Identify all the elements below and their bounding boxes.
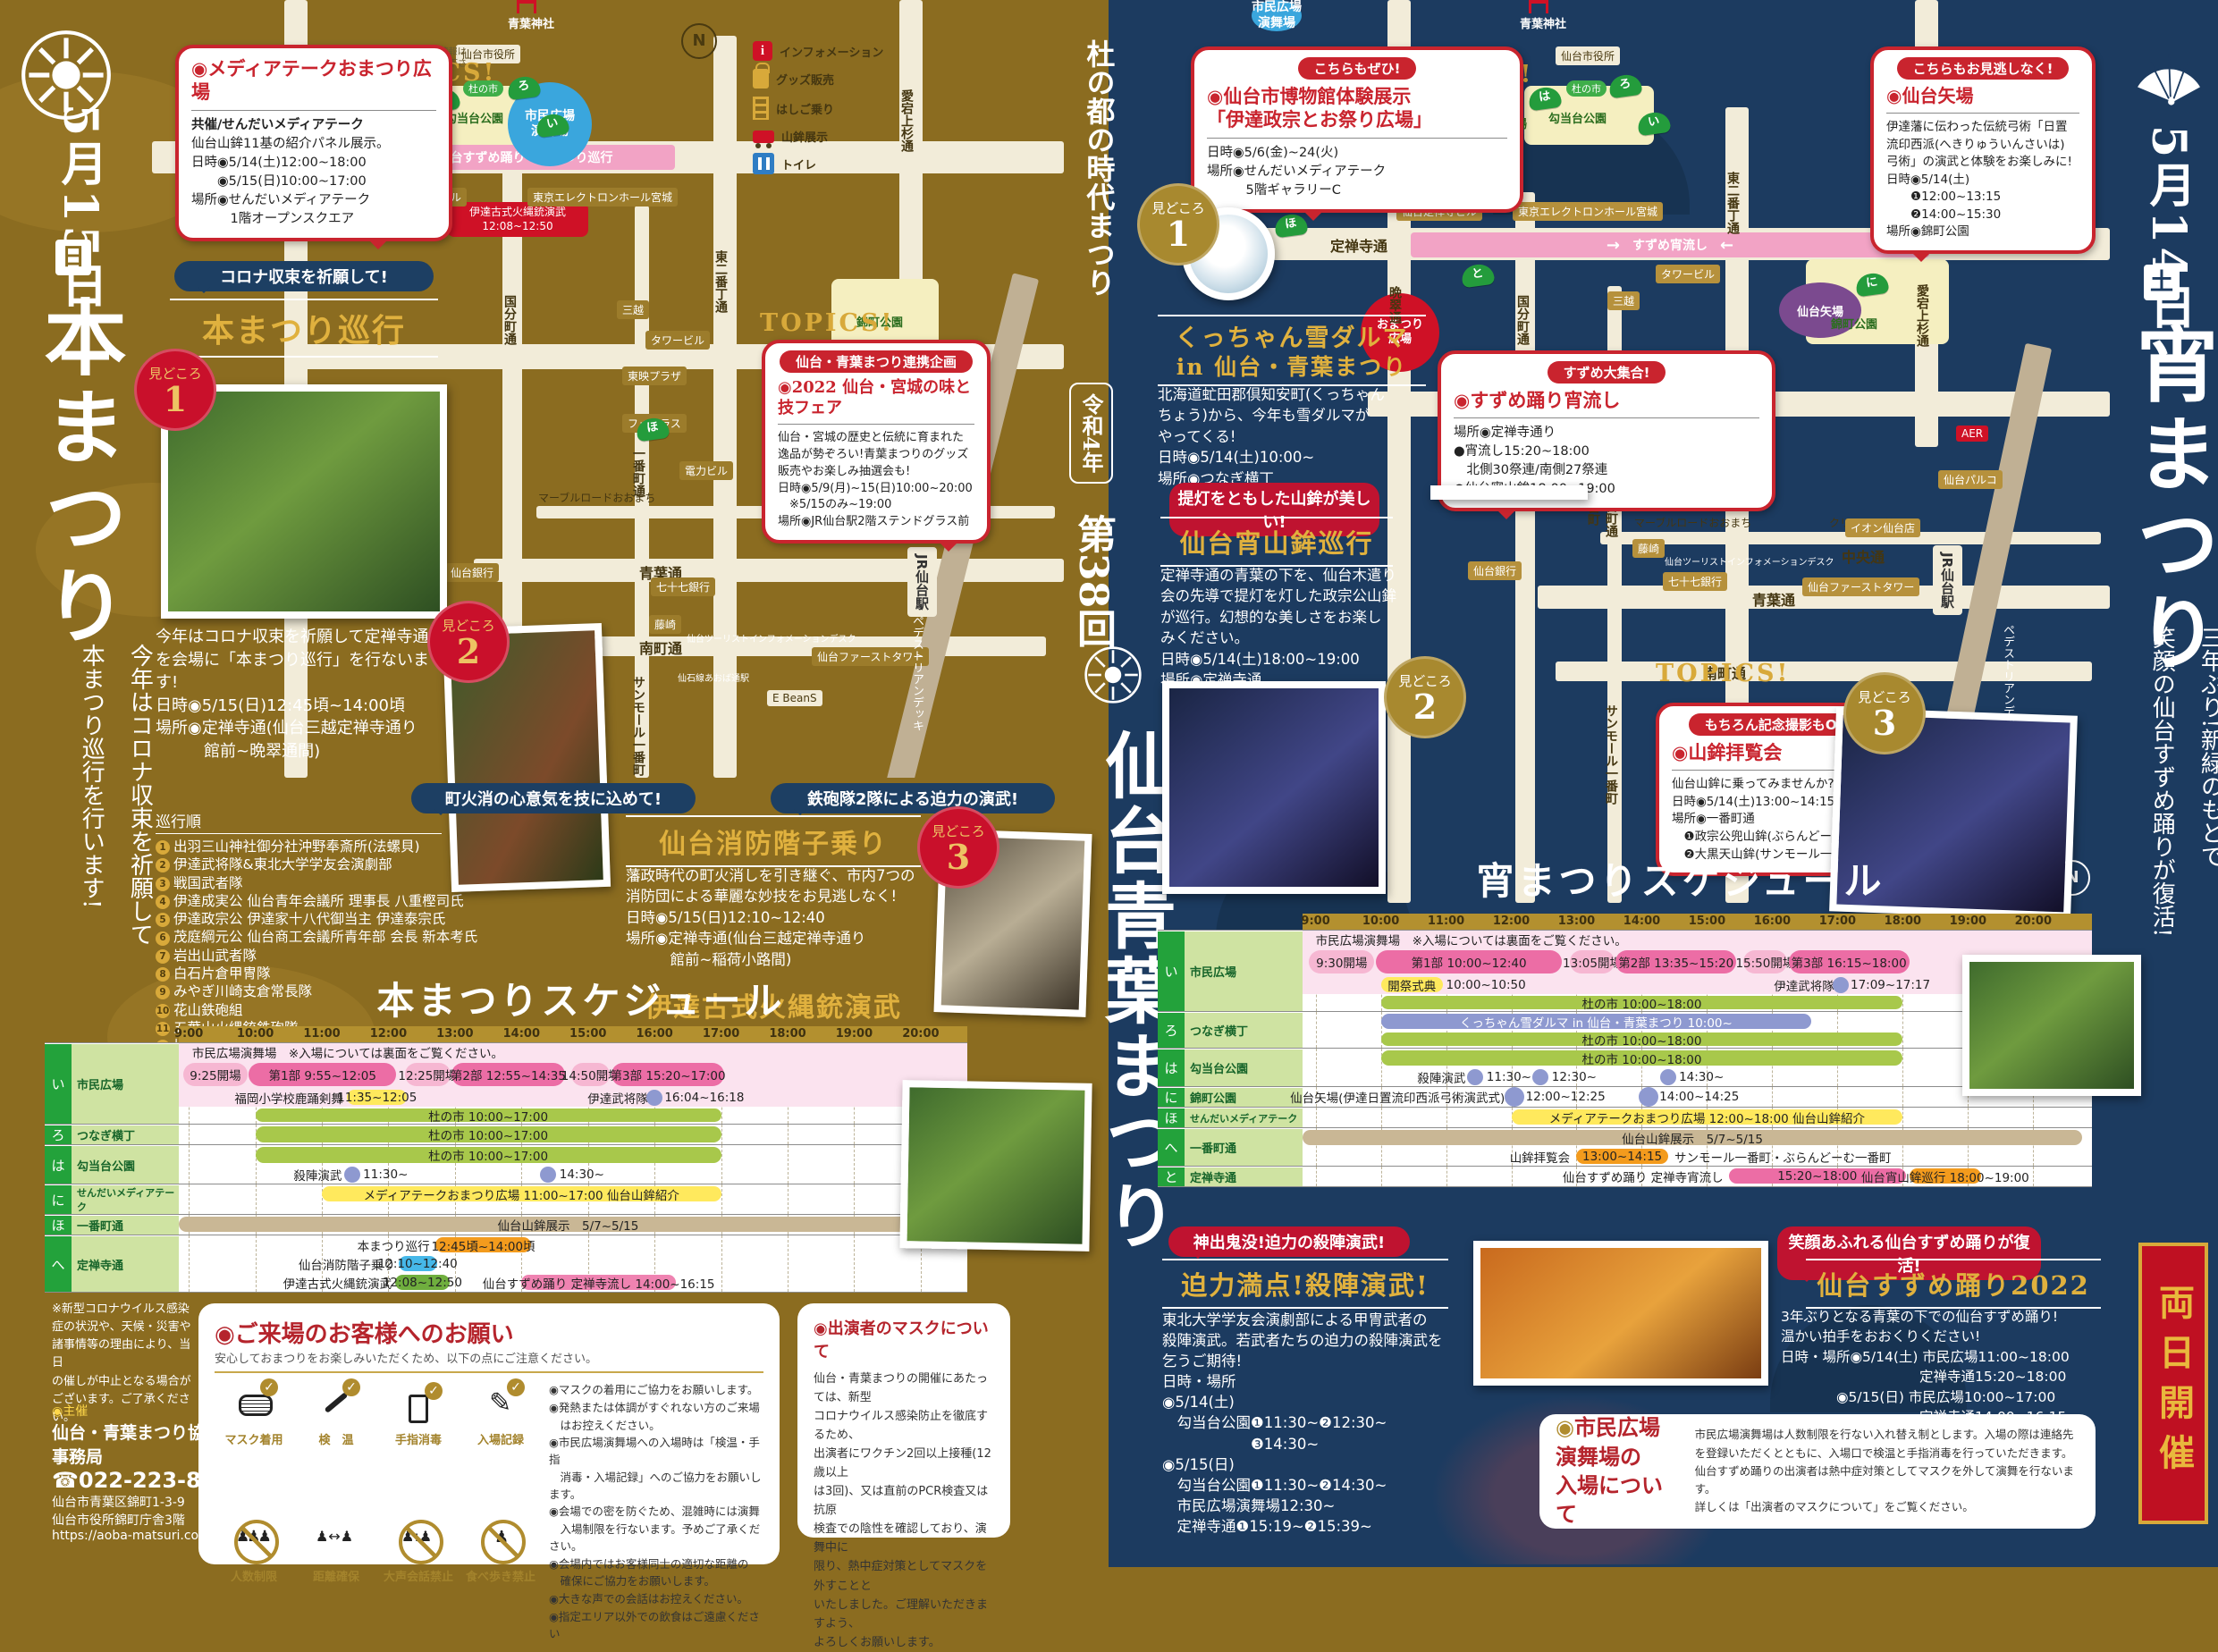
- left-tagline: 今年はコロナ収束を祈願して本まつり巡行を行います!: [63, 644, 159, 1073]
- topic-body-line: ◉5/15(日)10:00~17:00: [191, 173, 436, 191]
- map-label: 東映プラザ: [622, 367, 687, 385]
- map-label: 勾当台公園: [1548, 109, 1607, 126]
- topic-body-line: 場所◉定禅寺通り: [1454, 424, 1759, 442]
- schedule-item: 市民広場演舞場 ※入場については裏面をご覧ください。: [1316, 931, 1627, 948]
- schedule-item: 第2部 12:55~14:35: [451, 1063, 565, 1086]
- map-label: 仙台市役所: [1556, 46, 1620, 65]
- schedule-item: 12:45頃~14:00頃: [435, 1237, 532, 1252]
- photo-suzume-dance-troupe: [1962, 955, 2141, 1096]
- map-label: AER: [1956, 426, 1988, 442]
- schedule-item: [540, 1167, 556, 1183]
- schedule-item: 10:00~10:50: [1446, 978, 1526, 992]
- visitor-box-note: 安心しておまつりをお楽しみいただくため、以下の点にご注意ください。: [215, 1349, 763, 1373]
- precaution-icon-item: 食べ歩き禁止: [461, 1519, 540, 1643]
- map-label: 青葉神社: [1520, 14, 1566, 31]
- precaution-icon: [230, 1519, 278, 1560]
- highlight-badge-3: 見どころ3: [917, 806, 999, 889]
- map-label: 仙石線あおば通駅: [678, 670, 749, 684]
- compass-north-icon: N: [681, 23, 717, 59]
- ribbon-corona-prayer: コロナ収束を祈願して!: [174, 261, 434, 291]
- photo-warlord-on-horse: [899, 1080, 1092, 1252]
- left-main-title: 本まつり: [20, 295, 139, 653]
- ladder-description: 藩政時代の町火消しを引き継ぐ、市内7つの消防団による華麗な妙技をお見逃しなく!日…: [626, 865, 939, 970]
- parade-order-item: 1出羽三山神社御分社沖野奉斎所(法螺貝): [156, 839, 477, 855]
- legend-item: iインフォメーション: [753, 41, 883, 61]
- topic-title: ◉仙台市博物館体験展示: [1207, 85, 1507, 108]
- topic-body-line: 販売やお楽しみ抽選会も!: [778, 464, 974, 481]
- precaution-icon: [476, 1382, 525, 1423]
- mask-box-title: ◉出演者のマスクについて: [814, 1316, 994, 1362]
- schedule-item: 仙台すずめ踊り 定禅寺流し 14:00~16:15: [521, 1275, 676, 1290]
- legend-item: 山鉾展示: [753, 128, 883, 145]
- highlight-badge-2: 見どころ2: [1384, 656, 1466, 738]
- map-label: 東二番丁通: [712, 250, 729, 313]
- parade-order-item: 2伊達武将隊&東北大学学友会演劇部: [156, 856, 477, 872]
- map-label: 仙台ファーストタワー: [1802, 577, 1919, 596]
- map-label: タワービル: [645, 331, 710, 350]
- topic-title2: 「伊達政宗とお祭り広場」: [1207, 108, 1507, 138]
- map-street: [474, 559, 1064, 582]
- mask-box-line: 検査での陰性を確認しており、演舞中に: [814, 1520, 994, 1557]
- schedule-row: ろつなぎ横丁くっちゃん雪ダルマ in 仙台・青葉まつり 10:00~杜の市 10…: [1158, 1011, 2092, 1048]
- topic-body-line: 場所◉錦町公園: [1886, 223, 2079, 241]
- schedule-item: くっちゃん雪ダルマ in 仙台・青葉まつり 10:00~: [1381, 1014, 1812, 1029]
- suzume-2022-description: 3年ぶりとなる青葉の下での仙台すずめ踊り!温かい拍手をおおくりください!日時・場…: [1781, 1307, 2112, 1428]
- mask-box-line: いたしました。ご理解いただきますよう、: [814, 1596, 994, 1633]
- topic-body-line: 日時◉5/14(土): [1886, 172, 2079, 190]
- topics-heading: TOPICS!: [760, 309, 894, 337]
- schedule-item: 14:30~: [560, 1167, 604, 1182]
- topic-box-taste-craft-fair: 仙台・青葉まつり連携企画 ◉2022 仙台・宮城の味と技フェア 仙台・宮城の歴史…: [762, 340, 991, 544]
- map-label: 青葉神社: [508, 14, 554, 31]
- main-festival-schedule-chart: 9:0010:0011:0012:0013:0014:0015:0016:001…: [45, 1026, 967, 1285]
- map-label: 中央通: [1842, 545, 1885, 567]
- schedule-item: 11:30~: [1487, 1070, 1531, 1084]
- schedule-item: 第1部 9:55~12:05: [249, 1063, 396, 1086]
- entry-box-body: 市民広場演舞場は人数制限を行ない入れ替え制とします。入場の際は連絡先を登録いただ…: [1695, 1426, 2079, 1516]
- schedule-item: 杜の市 10:00~18:00: [1381, 1032, 1903, 1046]
- topic-body-line: 場所◉せんだいメディアテーク: [1207, 163, 1507, 181]
- map-label: タワービル: [1656, 265, 1720, 283]
- map-label: 仙台銀行: [1468, 561, 1522, 580]
- parade-order-item: 5伊達政宗公 伊達家十八代御当主 伊達泰宗氏: [156, 911, 477, 927]
- schedule-item: 13:00~14:15: [1576, 1149, 1667, 1164]
- mask-box-line: コロナウイルス感染防止を徹底するため、: [814, 1407, 994, 1445]
- parade-order-item: 7岩出山武者隊: [156, 948, 477, 964]
- schedule-item: 14:30~: [1679, 1070, 1724, 1084]
- topic-body-line: ❷14:00~15:30: [1886, 206, 2079, 224]
- center-era-badge: 令和4年: [1069, 383, 1113, 484]
- map-label: 国分町通: [501, 295, 519, 345]
- map-legend: iインフォメーショングッズ販売はしご乗り山鉾展示トイレ: [753, 41, 883, 182]
- map-label: 杜の市: [1566, 80, 1607, 97]
- topic-title: ◉2022 仙台・宮城の味と技フェア: [778, 378, 974, 425]
- eve-festival-schedule-title: 宵まつりスケジュール: [1430, 851, 1931, 906]
- schedule-item: 14:00~14:25: [1659, 1090, 1739, 1104]
- topic-body-line: 逸品が勢ぞろい!青葉まつりのグッズ: [778, 447, 974, 464]
- mask-box-line: 仙台・青葉まつりの開催にあたっては、新型: [814, 1370, 994, 1407]
- center-edition: 第38回: [1064, 514, 1121, 647]
- section-title-sword-battle: 迫力満点!殺陣演武!: [1162, 1259, 1448, 1309]
- precaution-icon-item: 人数制限: [215, 1519, 293, 1643]
- schedule-item: 杜の市 10:00~18:00: [1381, 996, 1903, 1009]
- section-title-ladder: 仙台消防階子乗り: [626, 815, 921, 867]
- eve-festival-schedule-chart: 9:0010:0011:0012:0013:0014:0015:0016:001…: [1158, 914, 2092, 1182]
- topic-subtitle: 共催/せんだいメディアテーク: [191, 116, 436, 135]
- map-label: 藤崎: [1632, 539, 1665, 558]
- map-label: 勾当台公園: [445, 109, 503, 126]
- schedule-item: 第3部 16:15~18:00: [1789, 950, 1910, 973]
- topic-body-line: 伊達藩に伝わった伝統弓術「日置: [1886, 119, 2079, 137]
- map-label: イオン仙台店: [1845, 518, 1920, 537]
- topic-pill: 仙台・青葉まつり連携企画: [780, 350, 973, 373]
- topic-body-line: 仙台山鉾11基の紹介パネル展示。: [191, 135, 436, 154]
- photo-night-float: [1162, 681, 1386, 894]
- schedule-row: は勾当台公園杜の市 10:00~18:00殺陣演武11:30~12:30~14:…: [1158, 1048, 2092, 1086]
- schedule-row: にせんだいメディアテークメディアテークおまつり広場 11:00~17:00 仙台…: [45, 1184, 967, 1214]
- schedule-item: 仙台山鉾展示 5/7~5/15: [1303, 1130, 2082, 1145]
- topic-box-mediatheque-plaza: ◉メディアテークおまつり広場 共催/せんだいメディアテーク 仙台山鉾11基の紹介…: [175, 45, 452, 241]
- precaution-icon: [312, 1519, 360, 1560]
- schedule-row: に錦町公園仙台矢場(伊達日置流印西派弓術演武式)12:00~12:2514:00…: [1158, 1086, 2092, 1107]
- center-crest-icon: [1084, 645, 1143, 704]
- precaution-icon-item: 大声会話禁止: [379, 1519, 458, 1643]
- both-days-banner: 両日開催: [2138, 1243, 2208, 1524]
- schedule-item: 11:35~12:05: [347, 1090, 407, 1105]
- map-label: 仙台ツーリストインフォメーションデスク: [1665, 554, 1834, 568]
- schedule-item: 仙台宵山鉾巡行 18:00~19:00: [1910, 1168, 1981, 1184]
- schedule-item: 9:30開場: [1309, 950, 1374, 973]
- precaution-icon-item: 検 温: [297, 1382, 375, 1506]
- schedule-item: 本まつり巡行: [358, 1236, 430, 1254]
- schedule-item: 9:25開場: [183, 1063, 247, 1086]
- map-label: 仙台パルコ: [1938, 470, 2003, 489]
- schedule-item: [1833, 977, 1849, 993]
- schedule-item: 14:50開場: [571, 1063, 610, 1086]
- map-label: 七十七銀行: [651, 577, 715, 596]
- topic-body-line: 流印西派(へきりゅういんさいは): [1886, 137, 2079, 155]
- schedule-item: メディアテークおまつり広場 11:00~17:00 仙台山鉾紹介: [322, 1186, 721, 1201]
- schedule-row: い市民広場市民広場演舞場 ※入場については裏面をご覧ください。9:30開場第1部…: [1158, 930, 2092, 1011]
- map-label: 東京エレクトロンホール宮城: [527, 188, 678, 206]
- precaution-icon: [394, 1519, 443, 1560]
- photo-suzume-dancers-bottom: [1473, 1241, 1768, 1386]
- civic-plaza-stage-circle: 市民広場演舞場: [1252, 0, 1302, 31]
- schedule-item: 第1部 10:00~12:40: [1376, 950, 1563, 973]
- schedule-row: ほ一番町通仙台山鉾展示 5/7~5/15: [45, 1214, 967, 1235]
- schedule-item: 伊達武将隊: [1774, 976, 1834, 994]
- left-date: 5月15日: [46, 104, 114, 312]
- parade-order-item: 3戦国武者隊: [156, 875, 477, 891]
- schedule-item: [344, 1167, 360, 1183]
- entry-box-title: ◉市民広場演舞場の入場について: [1556, 1413, 1679, 1530]
- schedule-item: 杜の市 10:00~17:00: [256, 1126, 721, 1142]
- topic-title: ◉メディアテークおまつり広場: [191, 57, 436, 111]
- highlight-badge-3: 見どころ3: [1843, 672, 1926, 754]
- map-label: ペデストリアンデッキ: [908, 615, 925, 731]
- schedule-item: 16:04~16:18: [664, 1091, 744, 1105]
- map-label: 三越: [617, 300, 649, 319]
- sword-battle-description: 東北大学学友会演劇部による甲冑武者の殺陣演武。若武者たちの迫力の殺陣演武を乞うご…: [1162, 1310, 1457, 1537]
- highlight-badge-2: 見どころ2: [427, 601, 510, 683]
- section-title-suzume-2022: 仙台すずめ踊り2022: [1806, 1259, 2101, 1309]
- topics-heading: TOPICS!: [1656, 660, 1790, 687]
- schedule-item: [1505, 1087, 1524, 1107]
- right-date: 5月14日: [2135, 125, 2202, 333]
- mask-box-line: よろしくお願いします。: [814, 1633, 994, 1652]
- precaution-bullets: ◉マスクの着用にご協力をお願いします。◉発熱または体調がすぐれない方のご来場 は…: [549, 1382, 763, 1643]
- map-label: 電力ビル: [679, 461, 733, 480]
- schedule-item: 殺陣演武: [1417, 1068, 1465, 1086]
- precaution-icon: [476, 1519, 525, 1560]
- legend-item: グッズ販売: [753, 69, 883, 88]
- schedule-item: 12:10~12:40: [399, 1256, 437, 1271]
- map-label: マーブルロードおおまち: [1634, 515, 1751, 530]
- topic-body-line: 1階オープンスクエア: [191, 210, 436, 229]
- precaution-icon-item: 手指消毒: [379, 1382, 458, 1506]
- schedule-item: サンモール一番町・ぶらんどーむ一番町: [1674, 1148, 1892, 1166]
- schedule-item: 杜の市 10:00~18:00: [1381, 1050, 1903, 1066]
- schedule-row: ほせんだいメディアテークメディアテークおまつり広場 12:00~18:00 仙台…: [1158, 1107, 2092, 1127]
- main-festival-schedule-title: 本まつりスケジュール: [295, 971, 867, 1025]
- topic-body-line: ●宵流し15:20~18:00: [1454, 442, 1759, 461]
- topic-pill: こちらもぜひ!: [1298, 57, 1417, 80]
- topic-body-line: 日時◉5/9(月)~15(日)10:00~20:00: [778, 481, 974, 498]
- schedule-item: 市民広場演舞場 ※入場については裏面をご覧ください。: [192, 1043, 503, 1061]
- map-label: 仙台ツーリストインフォメーションデスク: [687, 631, 856, 645]
- map-label: E BeanS: [767, 690, 822, 706]
- schedule-row: へ一番町通仙台山鉾展示 5/7~5/15山鉾拝覧会13:00~14:15サンモー…: [1158, 1127, 2092, 1166]
- map-label: 仙台銀行: [445, 563, 499, 582]
- schedule-item: 開祭式典: [1381, 977, 1443, 992]
- topic-body-line: 日時◉5/6(金)~24(火): [1207, 144, 1507, 163]
- map-label: 愛宕上杉通: [1913, 284, 1931, 347]
- schedule-item: 伊達武将隊: [587, 1089, 648, 1107]
- schedule-item: 15:50開場: [1743, 950, 1788, 973]
- precaution-icon-item: 入場記録: [461, 1382, 540, 1506]
- schedule-item: 12:00~12:25: [1526, 1090, 1606, 1104]
- topic-pill: すずめ大集合!: [1548, 361, 1666, 383]
- schedule-item: 伊達古式火縄銃演武: [283, 1274, 392, 1292]
- matchlock-route-tag: 伊達古式火縄銃演武 12:08~12:50: [447, 202, 588, 237]
- ribbon-matchlock: 鉄砲隊2隊による迫力の演武!: [771, 783, 1055, 813]
- section-title-evening-parade: 仙台宵山鉾巡行: [1160, 517, 1393, 567]
- schedule-item: 第3部 15:20~17:00: [611, 1063, 725, 1086]
- schedule-item: 12:08~12:50: [395, 1275, 450, 1290]
- photo-main-parade: [161, 384, 447, 619]
- topic-body-line: 日時◉5/14(土)12:00~18:00: [191, 154, 436, 173]
- right-tagline: 三年ぶり!新緑のもとで笑顔の仙台すずめ踊りが復活!: [2133, 626, 2218, 1091]
- topic-box-museum: こちらもぜひ! ◉仙台市博物館体験展示 「伊達政宗とお祭り広場」 日時◉5/6(…: [1191, 46, 1523, 213]
- ribbon-sword-battle: 神出鬼没!迫力の殺陣演武!: [1168, 1226, 1410, 1257]
- topic-body-line: 場所◉せんだいメディアテーク: [191, 191, 436, 210]
- shrine-torii-icon: [1529, 0, 1548, 13]
- schedule-item: [1467, 1069, 1483, 1085]
- precaution-icon-item: マスク着用: [215, 1382, 293, 1506]
- visitor-request-box: ◉ご来場のお客様へのお願い 安心しておまつりをお楽しみいただくため、以下の点にご…: [198, 1303, 780, 1564]
- precaution-icon: [230, 1382, 278, 1423]
- schedule-row: い市民広場市民広場演舞場 ※入場については裏面をご覧ください。9:25開場第1部…: [45, 1042, 967, 1124]
- right-weekday-badge: 土: [2144, 265, 2180, 300]
- map-label: サンモール一番町: [629, 676, 647, 776]
- parade-order-item: 4伊達成実公 仙台青年会議所 理事長 八重樫司氏: [156, 893, 477, 909]
- evening-parade-description: 定禅寺通の青葉の下を、仙台木遣り会の先導で提灯を灯した政宗公山鉾が巡行。幻想的な…: [1160, 565, 1411, 691]
- schedule-item: [1532, 1069, 1548, 1085]
- mask-box-line: 限り、熱中症対策としてマスクを外すことと: [814, 1557, 994, 1595]
- main-parade-description: 今年はコロナ収束を祈願して定禅寺通を会場に「本まつり巡行」を行ないます!日時◉5…: [156, 626, 451, 763]
- map-label: 東京エレクトロンホール宮城: [1513, 202, 1663, 221]
- map-label: 青葉通: [1752, 588, 1795, 610]
- visitor-box-title: ◉ご来場のお客様へのお願い: [215, 1316, 514, 1349]
- schedule-row: と定禅寺通仙台すずめ踊り 定禅寺宵流し15:20~18:00仙台宵山鉾巡行 18…: [1158, 1166, 2092, 1187]
- section-title-snowman2: in 仙台・青葉まつり: [1158, 347, 1426, 386]
- schedule-item: 17:09~17:17: [1851, 978, 1930, 992]
- legend-item: はしご乗り: [753, 97, 883, 120]
- topic-body-line: 仙台・宮城の歴史と伝統に育まれた: [778, 430, 974, 447]
- map-street: [713, 36, 737, 778]
- schedule-item: [1660, 1069, 1676, 1085]
- map-label: 南町通: [639, 636, 682, 658]
- venue-fan-marker: と: [1461, 263, 1496, 289]
- map-label: 錦町公園: [1831, 315, 1877, 332]
- stage-entry-box: ◉市民広場演舞場の入場について 市民広場演舞場は人数制限を行ない入れ替え制としま…: [1539, 1414, 2096, 1529]
- schedule-item: 11:30~: [363, 1167, 408, 1182]
- schedule-item: 仙台すずめ踊り 定禅寺宵流し: [1563, 1167, 1724, 1185]
- map-label: JR仙台駅: [1933, 545, 1962, 615]
- schedule-item: 杜の市 10:00~17:00: [256, 1147, 721, 1163]
- topic-body-line: 場所◉JR仙台駅2階ステンドグラス前: [778, 514, 974, 531]
- precaution-icons: マスク着用検 温手指消毒入場記録人数制限距離確保大声会話禁止食べ歩き禁止: [215, 1382, 540, 1643]
- photo-orange-dancers: [1430, 485, 1588, 500]
- section-title-main-parade: 本まつり巡行: [170, 299, 438, 358]
- highlight-badge-1: 見どころ1: [134, 349, 216, 431]
- precaution-icon-item: 距離確保: [297, 1519, 375, 1643]
- topic-pill: こちらもお見逃しなく!: [1897, 57, 2070, 80]
- schedule-item: [646, 1090, 662, 1106]
- topic-body-line: ❶12:00~13:15: [1886, 189, 2079, 206]
- map-label: マーブルロードおおまち: [538, 490, 655, 505]
- parade-order-item: 6茂庭綱元公 仙台商工会議所青年部 会長 新本考氏: [156, 929, 477, 945]
- shrine-torii-icon: [517, 0, 536, 13]
- mask-box-line: は3回)、又は直前のPCR検査又は抗原: [814, 1482, 994, 1520]
- suzume-evening-route-band: →すずめ宵流し←: [1411, 232, 1929, 257]
- map-label: 定禅寺通: [1330, 234, 1387, 256]
- center-jidai-title: 杜の都の時代まつり: [1066, 39, 1123, 297]
- fan-icon: [2128, 36, 2210, 105]
- schedule-item: 殺陣演武: [293, 1166, 342, 1184]
- ribbon-fire-brigade: 町火消の心意気を技に込めて!: [411, 783, 696, 813]
- topic-body-line: ※5/15のみ~19:00: [778, 497, 974, 514]
- schedule-item: 福岡小学校鹿踊剣舞: [234, 1089, 343, 1107]
- topic-title: ◉すずめ踊り宵流し: [1454, 389, 1759, 418]
- map-label: 東二番丁通: [1724, 172, 1742, 234]
- schedule-row: へ定禅寺通本まつり巡行12:45頃~14:00頃仙台消防階子乗り12:10~12…: [45, 1235, 967, 1293]
- mask-box-line: 出演者にワクチン2回以上接種(12歳以上: [814, 1445, 994, 1482]
- schedule-item: 13:05開場: [1570, 950, 1615, 973]
- performer-mask-box: ◉出演者のマスクについて 仙台・青葉まつりの開催にあたっては、新型コロナウイルス…: [797, 1303, 1010, 1538]
- schedule-item: 杜の市 10:00~17:00: [256, 1108, 721, 1122]
- map-label: 愛宕上杉通: [898, 89, 915, 152]
- topic-body-line: 弓術」の演武と体験をお楽しみに!: [1886, 154, 2079, 172]
- topic-title: ◉仙台矢場: [1886, 85, 2079, 114]
- map-label: JR仙台駅: [907, 547, 937, 617]
- schedule-item: 12:25開場: [405, 1063, 451, 1086]
- topic-box-yaba: こちらもお見逃しなく! ◉仙台矢場 伊達藩に伝わった伝統弓術「日置流印西派(へき…: [1870, 46, 2096, 254]
- left-weekday-badge: 日: [55, 240, 91, 275]
- legend-item: トイレ: [753, 153, 883, 174]
- schedule-row: は勾当台公園杜の市 10:00~17:00殺陣演武11:30~14:30~: [45, 1144, 967, 1184]
- schedule-item: [1639, 1087, 1658, 1107]
- highlight-badge-1: 見どころ1: [1137, 183, 1219, 265]
- precaution-icon: [394, 1382, 443, 1423]
- schedule-row: ろつなぎ横丁杜の市 10:00~17:00: [45, 1124, 967, 1144]
- map-label: サンモール一番町: [1602, 704, 1620, 805]
- schedule-item: 仙台山鉾展示 5/7~5/15: [179, 1217, 957, 1232]
- map-label: 七十七銀行: [1663, 572, 1727, 591]
- topic-body-line: 北側30祭連/南側27祭連: [1454, 461, 1759, 480]
- schedule-item: 12:30~: [1552, 1070, 1597, 1084]
- topic-body-line: 5階ギャラリーC: [1207, 181, 1507, 200]
- schedule-item: 仙台矢場(伊達日置流印西派弓術演武式): [1290, 1088, 1505, 1106]
- map-label: 国分町通: [1514, 295, 1531, 345]
- precaution-icon: [312, 1382, 360, 1423]
- schedule-item: 山鉾拝覧会: [1510, 1148, 1571, 1166]
- schedule-item: 第2部 13:35~15:20: [1615, 950, 1736, 973]
- snowman-description: 北海道虻田郡倶知安町(くっちゃんちょう)から、今年も雪ダルマがやってくる!日時◉…: [1158, 384, 1435, 489]
- parade-order-heading: 巡行順: [156, 809, 442, 834]
- map-label: 藤崎: [649, 615, 681, 634]
- map-label: 三越: [1607, 291, 1640, 310]
- schedule-item: メディアテークおまつり広場 12:00~18:00 仙台山鉾紹介: [1512, 1109, 1903, 1125]
